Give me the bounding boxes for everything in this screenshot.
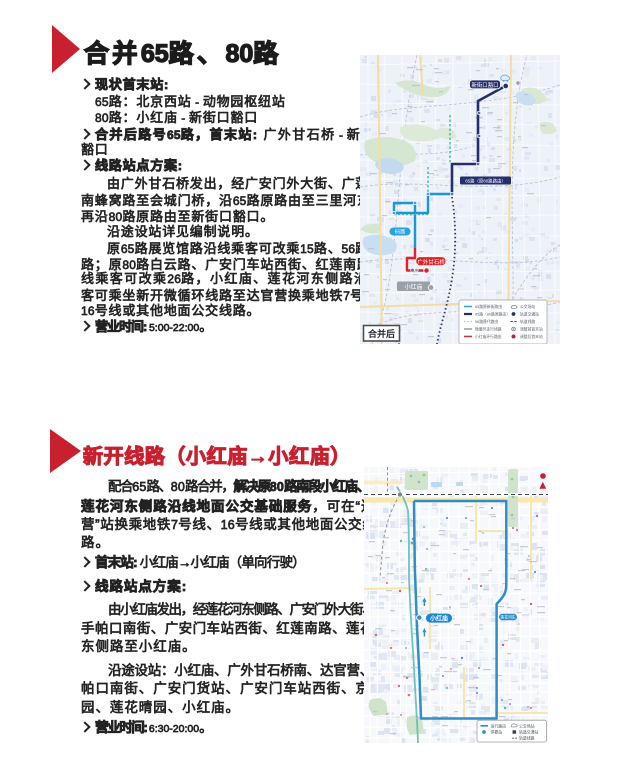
svg-text:广外甘石桥: 广外甘石桥 (417, 258, 445, 266)
svg-text:微循环走行线路: 微循环走行线路 (475, 326, 502, 331)
svg-text:轨道交通站: 轨道交通站 (519, 730, 539, 735)
svg-text:轨道交通站: 轨道交通站 (520, 311, 539, 316)
svg-text:65路原新街路由: 65路原新街路由 (475, 304, 502, 309)
svg-text:公交场站: 公交场站 (520, 304, 535, 309)
svg-text:小红庙: 小红庙 (429, 615, 448, 623)
svg-text:小红庙: 小红庙 (404, 283, 422, 291)
svg-text:调整前首末站: 调整前首末站 (520, 326, 543, 331)
svg-text:运行路由: 运行路由 (491, 723, 507, 728)
svg-text:65路: 65路 (395, 229, 406, 236)
svg-text:小红庙环行路由: 小红庙环行路由 (475, 334, 502, 339)
svg-text:65路（80路原路由）: 65路（80路原路由） (475, 311, 510, 316)
svg-text:停靠站: 停靠站 (491, 730, 503, 735)
svg-text:莲花河东: 莲花河东 (500, 615, 515, 620)
svg-text:公交场站: 公交场站 (519, 723, 535, 728)
svg-text:新街口豁口: 新街口豁口 (472, 81, 499, 89)
svg-text:合并后: 合并后 (368, 328, 395, 339)
svg-text:调整后首末站: 调整后首末站 (520, 334, 543, 339)
svg-text:65路（原80路路由）: 65路（原80路路由） (465, 178, 506, 185)
svg-text:轨道线路: 轨道线路 (520, 319, 535, 324)
svg-text:56路替代路由: 56路替代路由 (475, 319, 498, 324)
svg-text:轨道线路: 轨道线路 (519, 736, 535, 741)
